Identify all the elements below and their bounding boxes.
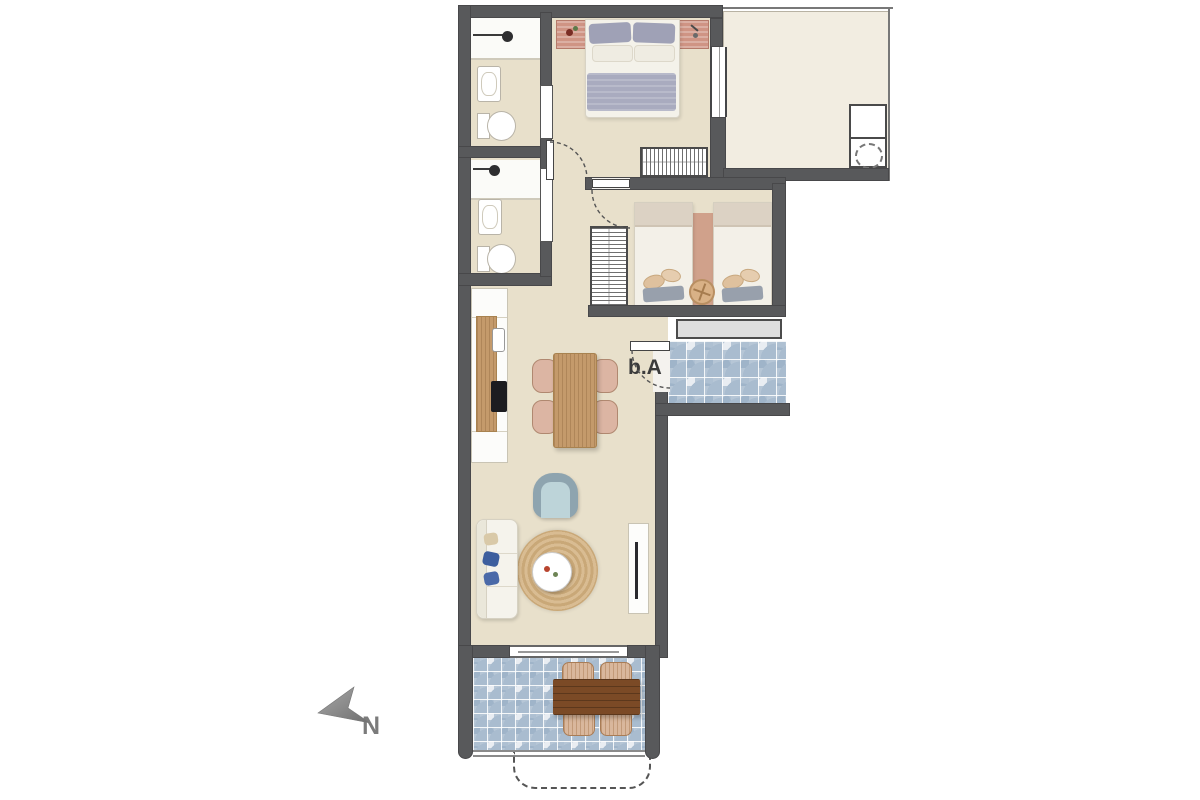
sofa	[476, 519, 518, 619]
wall-bath2-bottom	[458, 273, 552, 286]
tv-sideboard	[628, 523, 649, 614]
terrace-door-leaf	[630, 341, 670, 351]
twin-bed-right-throw	[722, 286, 764, 303]
bathroom2-shower	[471, 160, 541, 200]
floor-plan-canvas: b.A N	[0, 0, 1200, 800]
master-bedroom-door-leaf	[546, 140, 554, 180]
coffee-table	[532, 552, 572, 592]
terrace-top-rail-line	[723, 7, 893, 9]
utility-box	[849, 104, 887, 168]
north-label: N	[362, 712, 380, 741]
twin-bed-left	[634, 202, 693, 307]
bathroom1-sink	[477, 66, 501, 102]
dining-table	[553, 353, 597, 448]
nightstand-right	[679, 20, 709, 49]
master-bed-pillow2-left	[592, 45, 633, 62]
bedroom2-door-leaf	[592, 179, 630, 188]
master-wardrobe	[640, 147, 708, 177]
bathroom1-shower-drain-icon	[502, 31, 513, 42]
master-bed-blanket	[587, 73, 676, 111]
wall-bedroom2-right	[772, 183, 786, 316]
terrace-door-label: b.A	[628, 356, 662, 380]
bathroom2-toilet	[477, 244, 515, 273]
corridor-wardrobe	[590, 226, 628, 312]
bathroom2-sink	[478, 199, 502, 235]
wall-terrace3-left	[458, 645, 473, 759]
nightstand-left	[556, 20, 586, 49]
bedroom2-window-band	[676, 319, 782, 339]
terrace-right-edge-line	[888, 7, 890, 181]
sofa-pillow-tan	[483, 532, 499, 546]
armchair	[533, 473, 578, 518]
twin-bed-left-headband	[635, 203, 692, 227]
sofa-pillow-blue-2	[483, 571, 500, 586]
wall-bedroom2-bottom	[588, 305, 786, 317]
terrace-middle-tile	[668, 341, 786, 403]
twin-bed-right-headband	[714, 203, 771, 227]
bathroom1-sliding-door	[540, 85, 553, 139]
outdoor-table	[553, 679, 640, 715]
kitchen-sink	[492, 328, 505, 352]
living-sliding-glass-door	[510, 645, 627, 658]
kitchen-cooktop	[491, 381, 507, 412]
twin-bed-left-throw	[643, 286, 685, 303]
wall-terrace2-bottom	[655, 403, 790, 416]
master-bedroom-window	[710, 47, 727, 117]
washer-drum-icon	[855, 143, 883, 169]
sofa-pillow-blue-1	[482, 550, 501, 567]
wall-left	[458, 5, 471, 658]
wall-top	[458, 5, 723, 18]
twin-bed-right	[713, 202, 772, 307]
utility-box-divider	[851, 137, 885, 139]
armchair-seat	[541, 482, 570, 518]
bathroom1-toilet	[477, 111, 515, 140]
master-bed-pillow-right	[633, 22, 676, 43]
wall-right-upper	[710, 18, 723, 47]
bedroom2-stool	[689, 279, 715, 305]
master-bed-pillow2-right	[634, 45, 675, 62]
wall-terrace3-right	[645, 645, 660, 759]
entry-step-dashed-outline	[513, 752, 651, 789]
master-bed	[585, 19, 680, 118]
bathroom2-shower-drain-icon	[489, 165, 500, 176]
master-bed-pillow-left	[589, 22, 632, 44]
wall-bath-divider	[458, 146, 552, 158]
tv-icon	[635, 542, 638, 599]
